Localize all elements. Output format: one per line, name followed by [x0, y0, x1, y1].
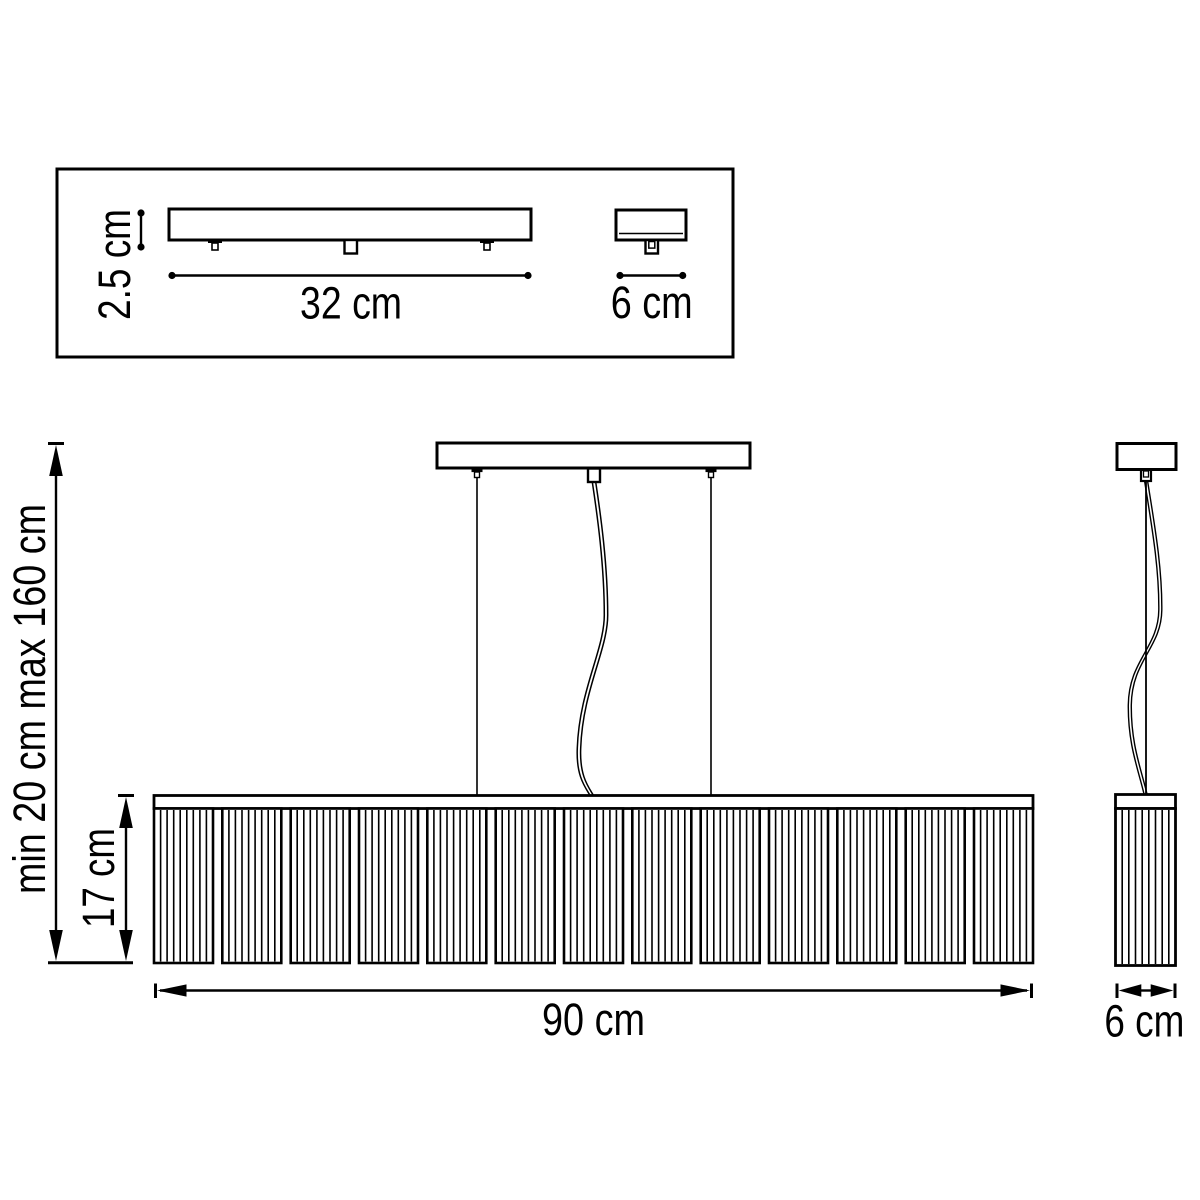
svg-text:min 20 cm max 160 cm: min 20 cm max 160 cm [4, 504, 55, 894]
svg-text:6 cm: 6 cm [1104, 995, 1184, 1046]
svg-text:90 cm: 90 cm [542, 994, 645, 1045]
svg-text:6 cm: 6 cm [611, 277, 693, 328]
svg-text:32 cm: 32 cm [300, 278, 402, 329]
svg-text:17 cm: 17 cm [73, 828, 124, 928]
svg-text:2.5 cm: 2.5 cm [89, 209, 140, 320]
